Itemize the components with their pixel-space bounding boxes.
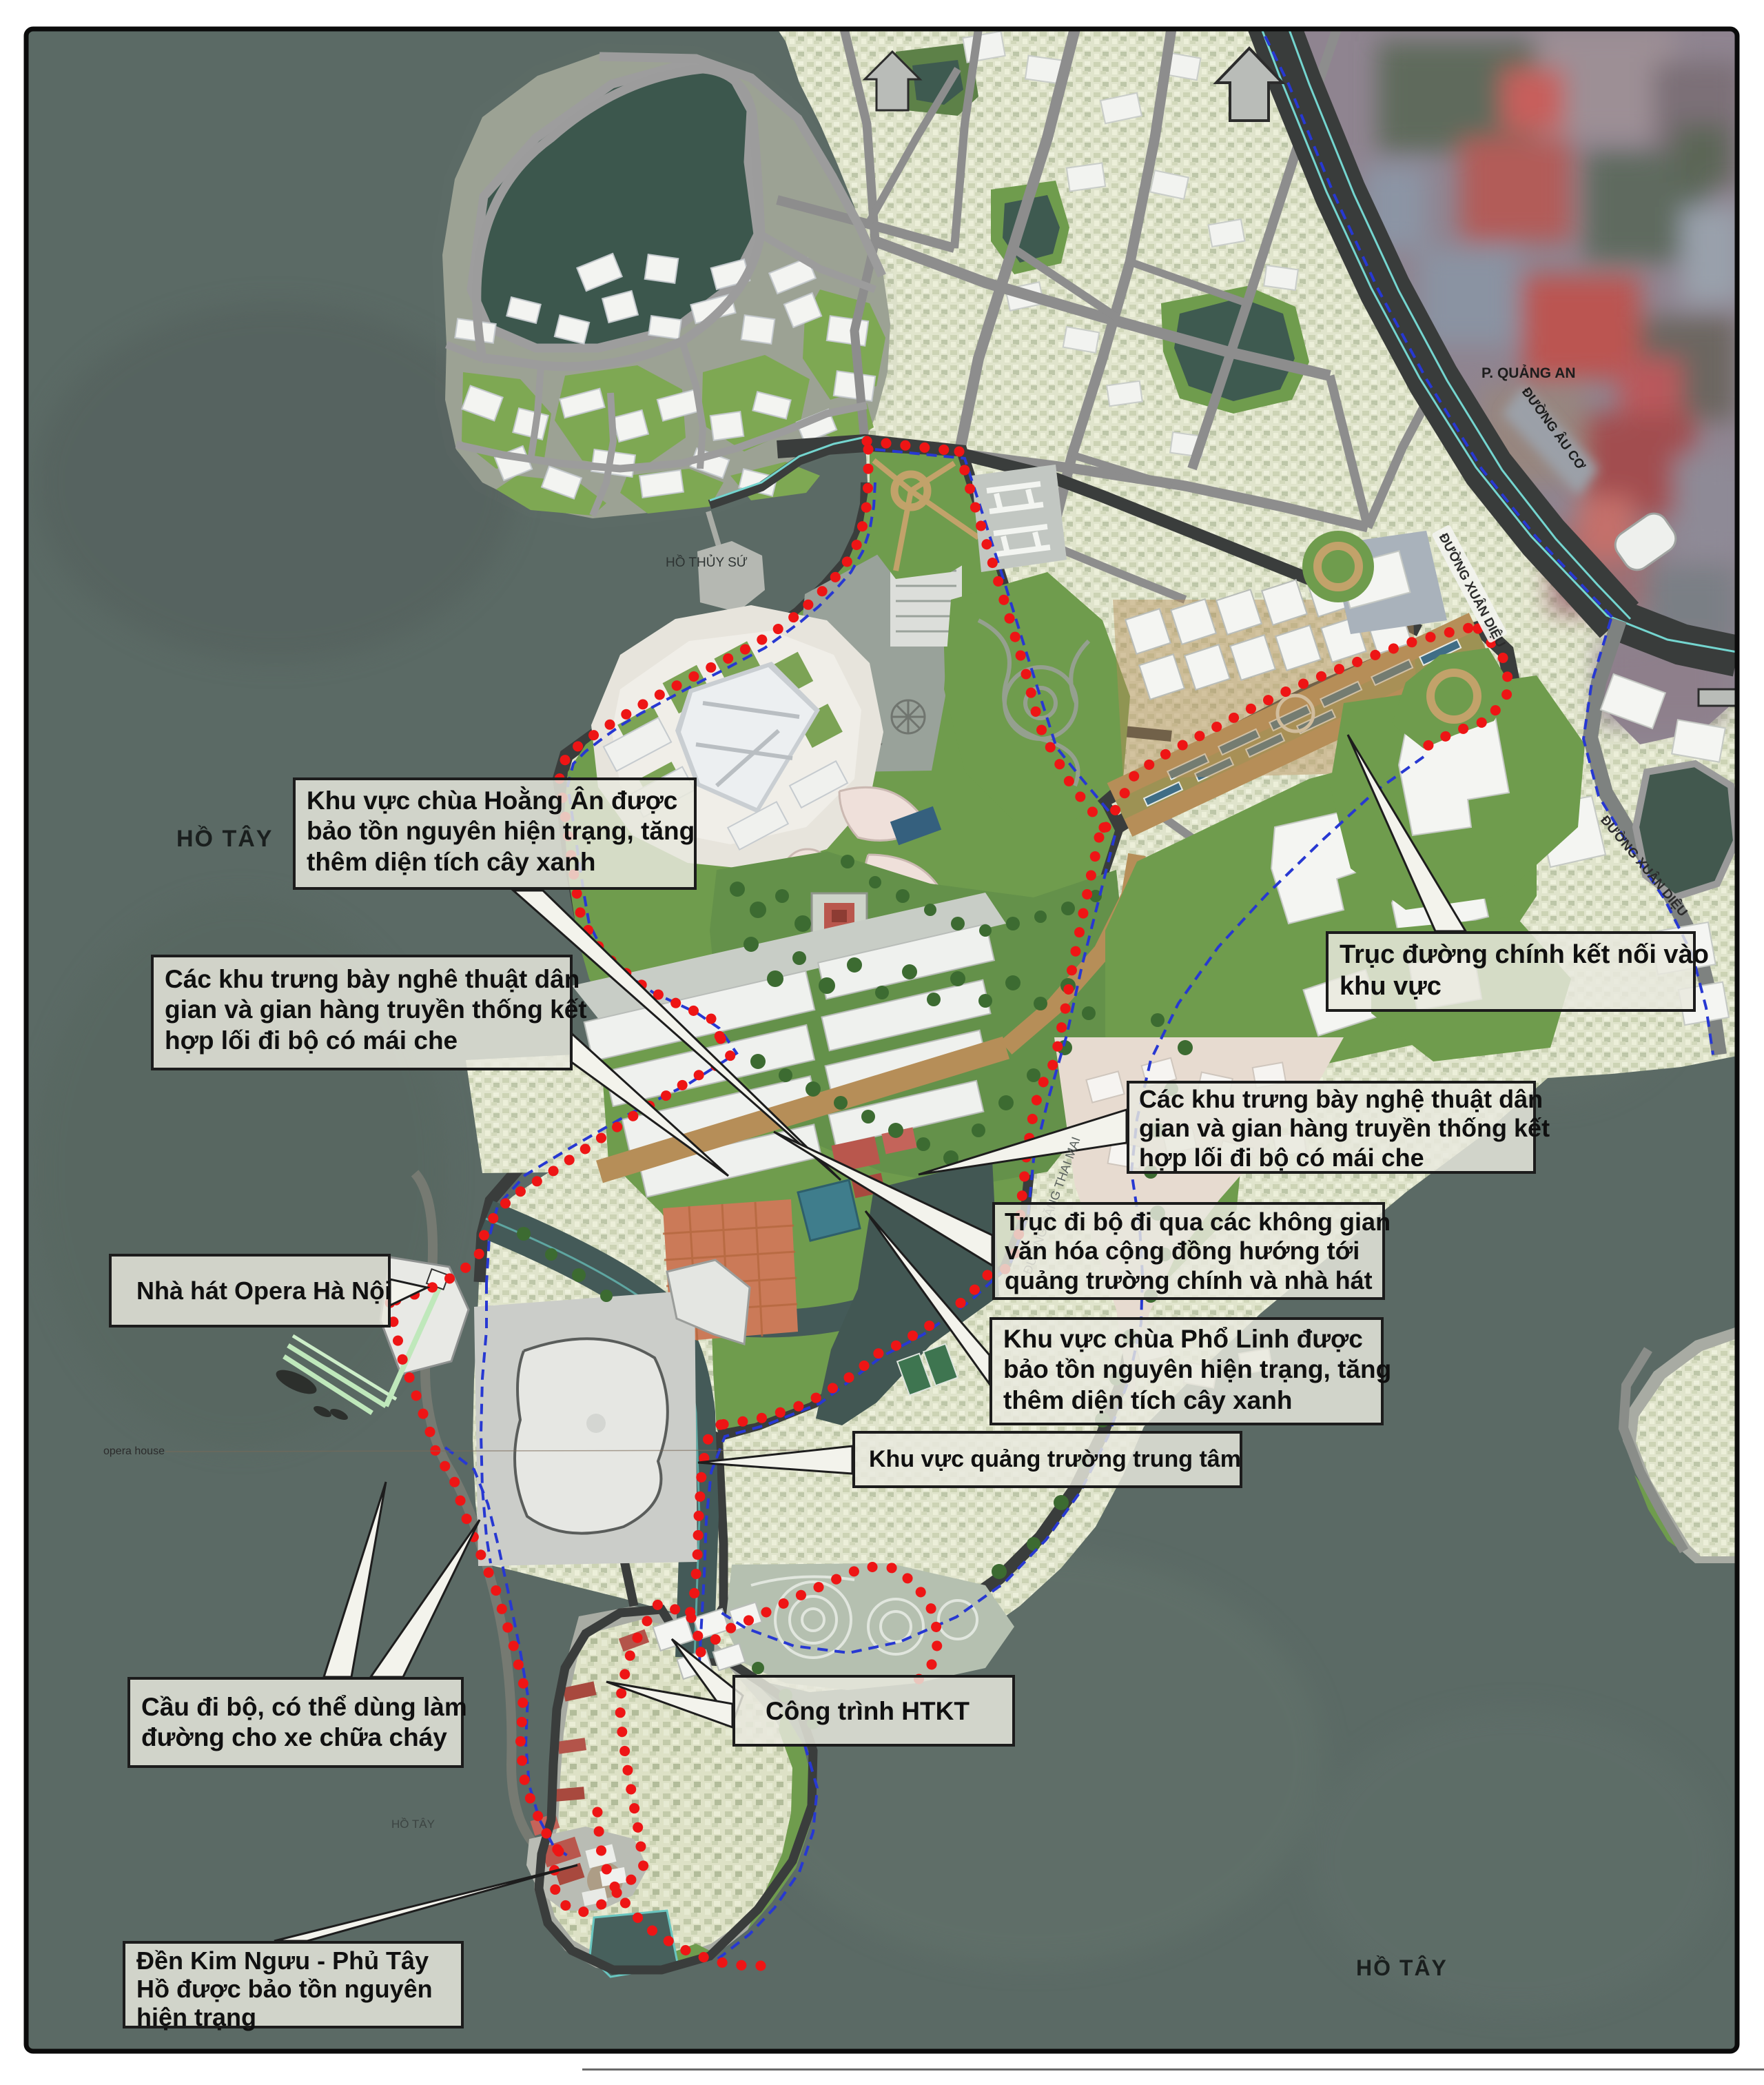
svg-text:HỒ TÂY: HỒ TÂY bbox=[1356, 1955, 1448, 1980]
svg-text:HỒ THỦY SỨ: HỒ THỦY SỨ bbox=[666, 555, 748, 570]
svg-text:HỒ TÂY: HỒ TÂY bbox=[391, 1818, 435, 1831]
svg-text:HỒ TÂY: HỒ TÂY bbox=[176, 826, 273, 852]
svg-text:P. QUẢNG AN: P. QUẢNG AN bbox=[1481, 365, 1576, 381]
svg-text:opera house: opera house bbox=[103, 1445, 165, 1457]
